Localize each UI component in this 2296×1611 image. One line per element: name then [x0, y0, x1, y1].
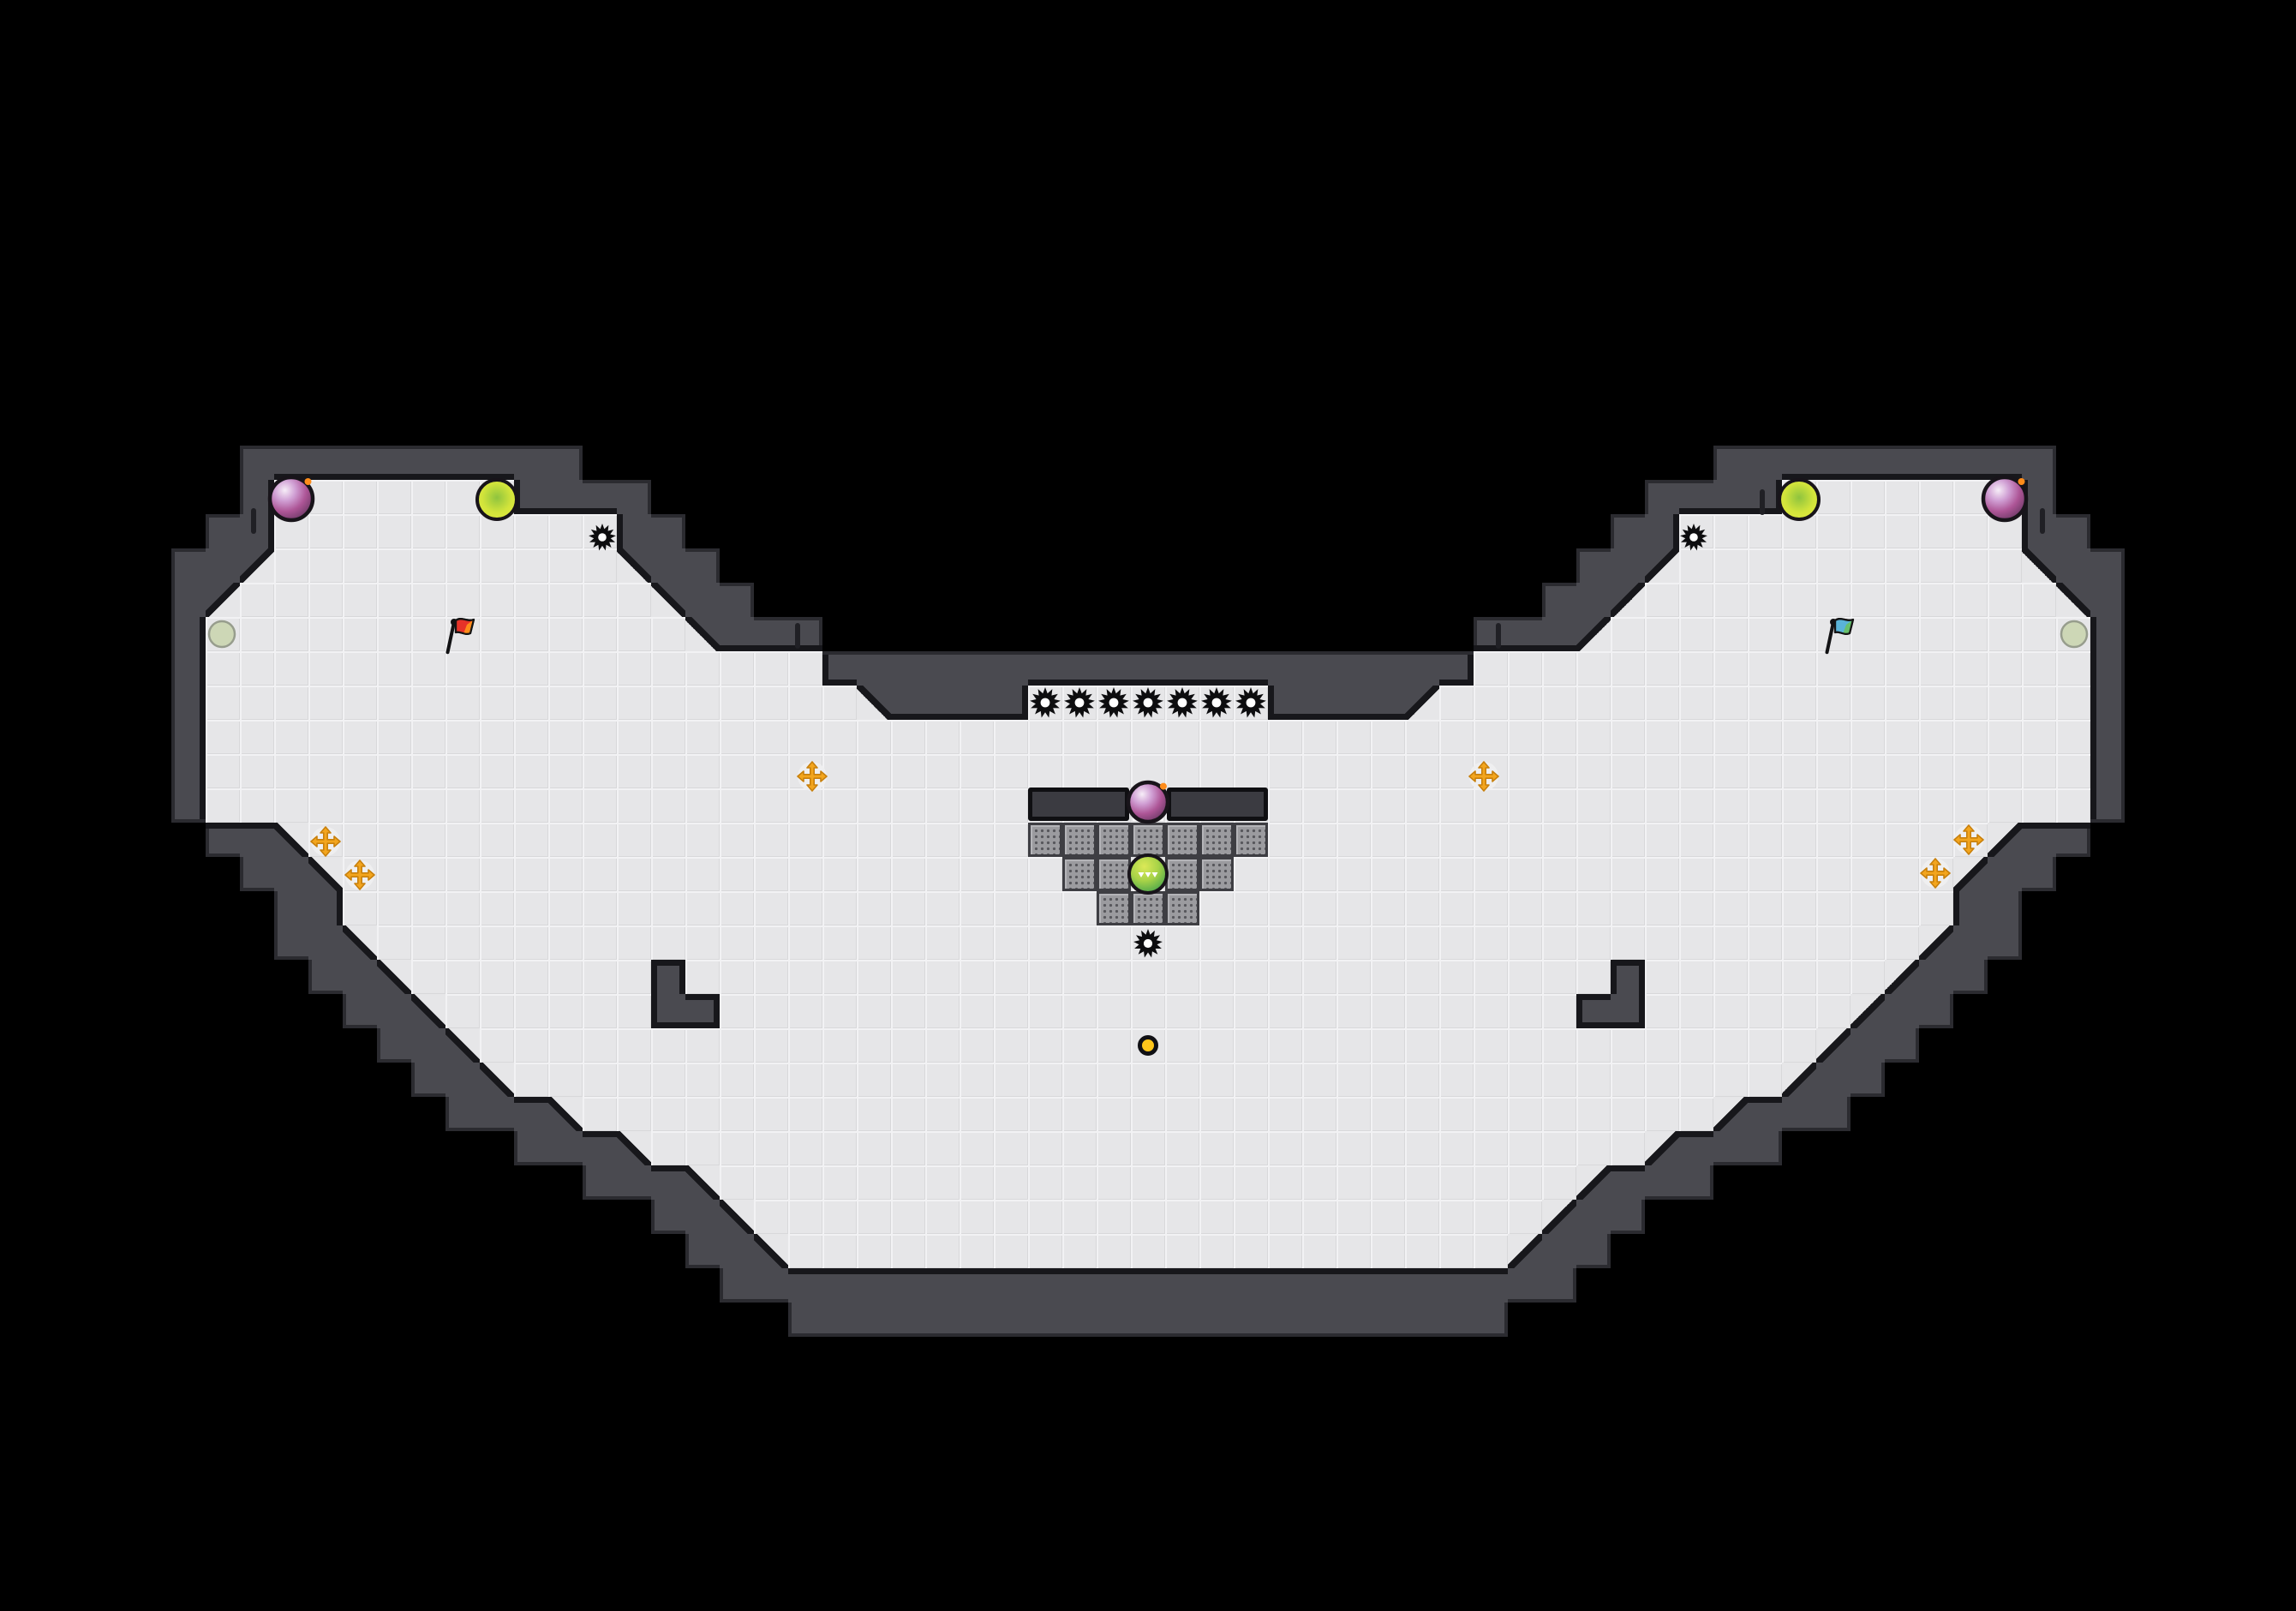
sprite-layer	[0, 0, 2296, 1611]
saw-gear-icon	[1133, 929, 1163, 958]
saw-gear-icon	[1235, 687, 1266, 718]
gold-cross-icon	[1921, 859, 1950, 888]
saw-gear-icon	[1030, 687, 1061, 718]
saw-gear-icon	[1133, 687, 1163, 718]
gold-cross-icon	[345, 860, 374, 889]
saw-gear-icon	[1167, 687, 1198, 718]
gold-coin	[1140, 1038, 1157, 1054]
gold-cross-icon	[311, 827, 340, 856]
saw-gear-icon	[1098, 687, 1129, 718]
saw-gear-icon	[1064, 687, 1095, 718]
gold-cross-icon	[1954, 825, 1983, 854]
level-map-stage[interactable]	[0, 0, 2296, 1611]
gold-cross-icon	[1469, 762, 1498, 791]
ghost-orb	[2061, 621, 2087, 647]
yellow-orb	[1779, 480, 1819, 519]
green-spike-orb	[1129, 855, 1167, 893]
purple-bomb-orb	[270, 477, 313, 520]
gold-cross-icon	[798, 762, 827, 791]
saw-gear-icon	[1201, 687, 1232, 718]
blue-flag-icon	[1825, 619, 1853, 655]
purple-bomb-orb	[1128, 782, 1168, 822]
purple-bomb-orb	[1983, 477, 2026, 520]
yellow-orb	[477, 480, 517, 519]
saw-gear-icon	[1680, 524, 1707, 551]
saw-gear-icon	[589, 524, 616, 551]
ghost-orb	[209, 621, 235, 647]
red-flag-icon	[445, 619, 474, 655]
